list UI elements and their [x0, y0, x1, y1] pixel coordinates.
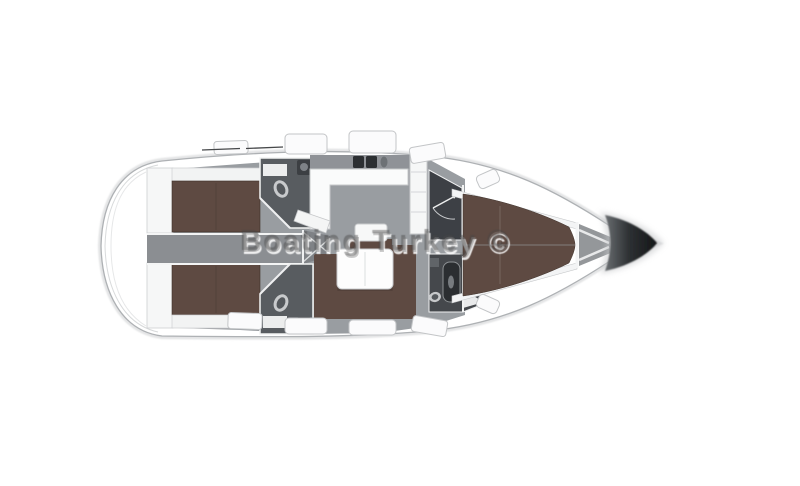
bow-tip [600, 212, 664, 274]
head-starboard-vanity [263, 316, 287, 328]
head-port-vanity [263, 164, 287, 176]
deck-hatch [349, 320, 396, 335]
deck-hatch [214, 140, 248, 154]
deck-hatch [228, 312, 263, 329]
yacht-floor-plan: Boating Turkey © [0, 0, 800, 486]
companionway-corridor [147, 234, 305, 264]
deck-hatch [285, 318, 327, 334]
galley-cabinet [410, 152, 427, 234]
stove-icon [381, 157, 388, 168]
aft-cabin-port-shelf [172, 168, 260, 181]
aft-cabin-port [172, 168, 260, 232]
stern-locker-starboard [147, 263, 173, 328]
deck-hatch [285, 134, 327, 154]
yacht-plan-drawing [0, 0, 800, 486]
stern-locker-port [147, 168, 173, 233]
galley-sink-icon [353, 156, 364, 168]
deck-hatch [349, 131, 396, 153]
sink-icon [430, 258, 439, 267]
chart-seat [355, 224, 387, 241]
